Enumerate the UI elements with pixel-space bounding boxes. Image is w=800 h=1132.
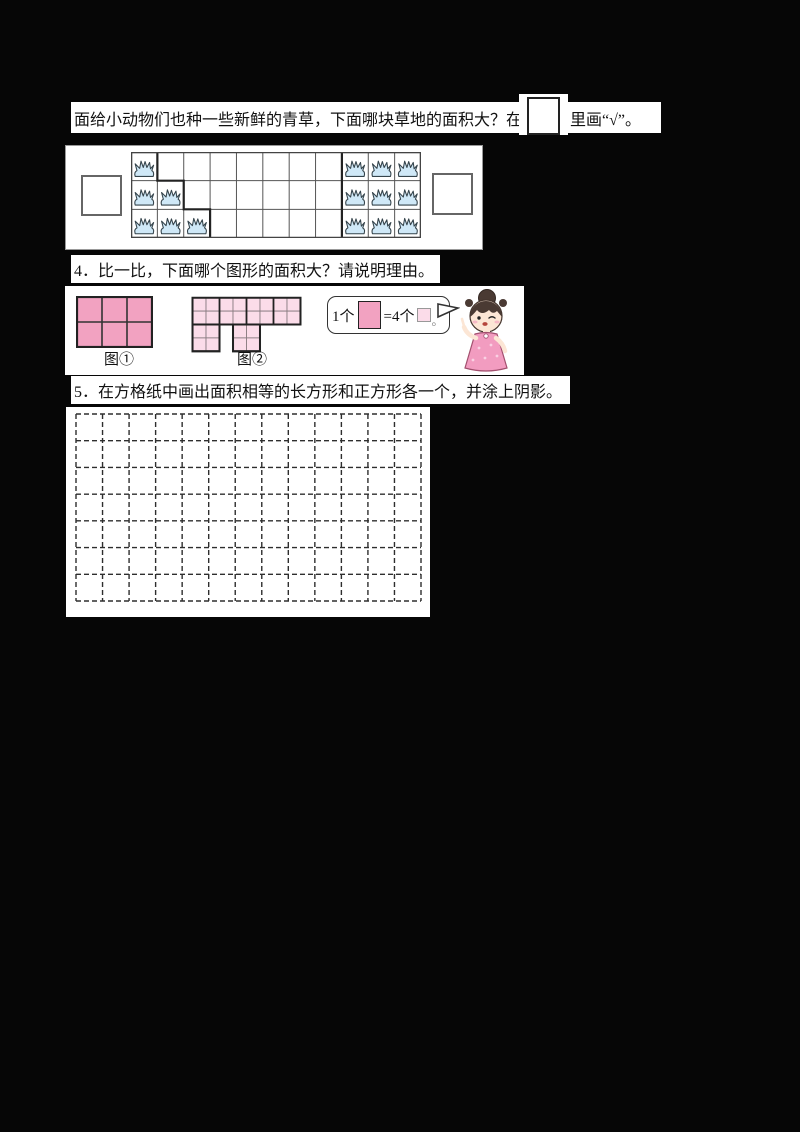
question-4-prompt: 比一比，下面哪个图形的面积大？请说明理由。 xyxy=(98,257,434,281)
figure-1-grid xyxy=(76,296,153,348)
figure-2-grid xyxy=(191,296,302,353)
question-4-number: 4． xyxy=(71,257,98,281)
figure-2-label: 图② xyxy=(227,348,277,369)
worksheet-page: 面给小动物们也种一些新鲜的青草，下面哪块草地的面积大？在 里画“√”。 4． 比… xyxy=(0,0,800,1132)
figure-1-label: 图① xyxy=(95,348,143,369)
question-4-figure-block: 图① 图② 1个 =4个 。 xyxy=(65,286,524,375)
question-5-grid-block xyxy=(66,407,430,617)
question-3-prompt-strip: 面给小动物们也种一些新鲜的青草，下面哪块草地的面积大？在 里画“√”。 xyxy=(71,102,661,133)
question-5-number: 5． xyxy=(71,378,98,402)
question-5-prompt: 在方格纸中画出面积相等的长方形和正方形各一个，并涂上阴影。 xyxy=(98,378,562,402)
grass-figure-frame xyxy=(65,145,483,250)
inline-answer-box[interactable] xyxy=(527,97,560,135)
dashed-drawing-grid[interactable] xyxy=(75,413,422,602)
grass-grid xyxy=(131,152,421,238)
question-3-prompt-after: 里画“√”。 xyxy=(570,106,641,130)
question-3-prompt-before: 面给小动物们也种一些新鲜的青草，下面哪块草地的面积大？在 xyxy=(71,106,522,130)
question-5-prompt-strip: 5． 在方格纸中画出面积相等的长方形和正方形各一个，并涂上阴影。 xyxy=(71,376,570,404)
question-4-prompt-strip: 4． 比一比，下面哪个图形的面积大？请说明理由。 xyxy=(71,255,440,283)
girl-illustration xyxy=(445,288,525,374)
answer-box-right-plot[interactable] xyxy=(432,173,473,215)
small-unit-square-swatch xyxy=(417,308,431,322)
answer-box-left-plot[interactable] xyxy=(81,175,122,216)
speech-bubble: 1个 =4个 。 xyxy=(327,296,450,334)
speech-bubble-text-middle: =4个 xyxy=(384,305,415,326)
speech-bubble-text-before: 1个 xyxy=(332,305,355,326)
large-unit-square-swatch xyxy=(358,301,381,329)
